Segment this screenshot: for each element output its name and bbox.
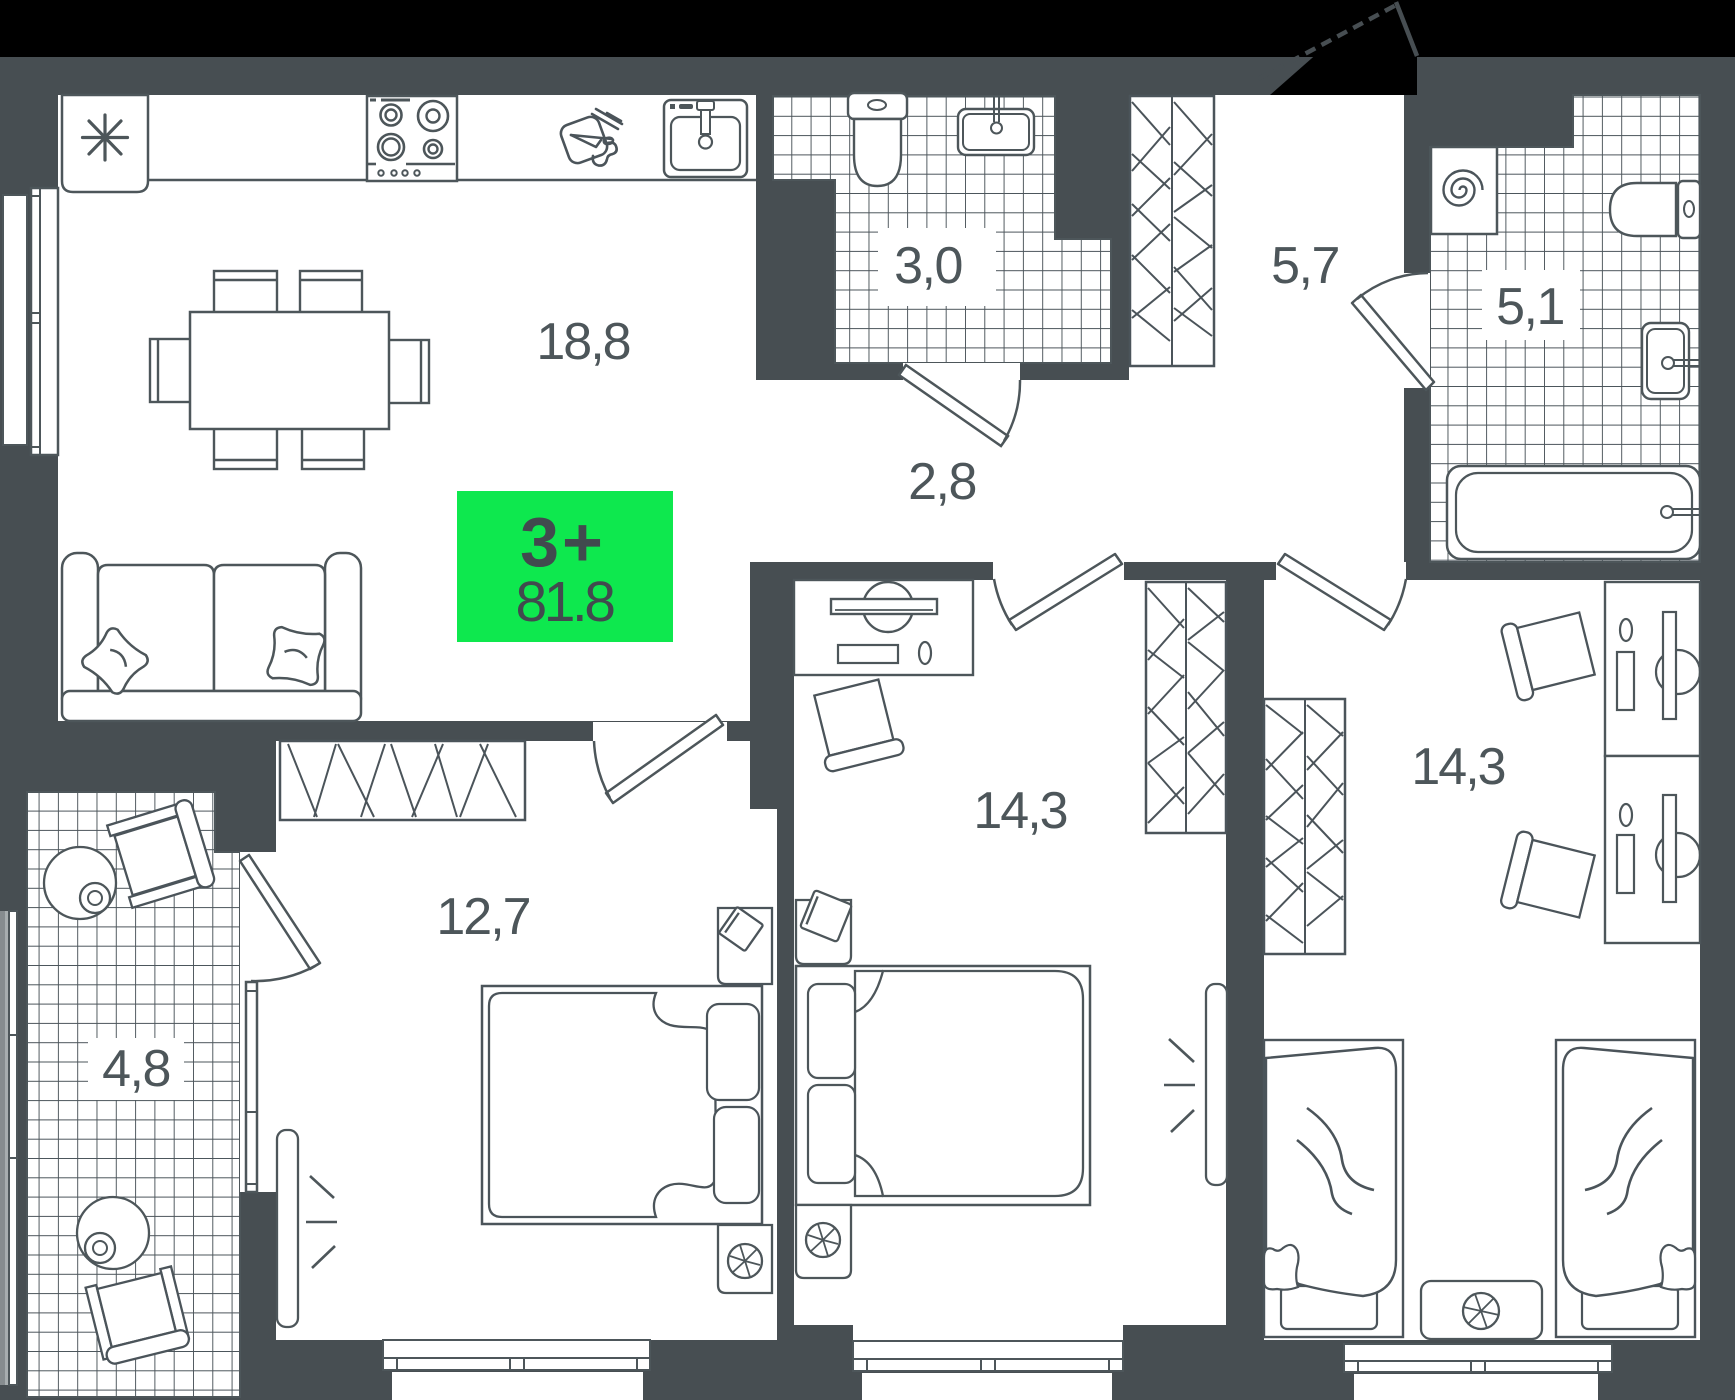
svg-text:5,1: 5,1 (1496, 278, 1564, 336)
svg-text:81.8: 81.8 (516, 570, 615, 634)
svg-text:12,7: 12,7 (436, 888, 529, 946)
svg-text:18,8: 18,8 (536, 313, 629, 371)
svg-text:14,3: 14,3 (973, 782, 1066, 840)
svg-text:14,3: 14,3 (1411, 738, 1504, 796)
svg-text:4,8: 4,8 (102, 1040, 170, 1098)
svg-text:5,7: 5,7 (1271, 237, 1339, 295)
svg-text:2,8: 2,8 (908, 453, 976, 511)
svg-text:3,0: 3,0 (894, 237, 962, 295)
